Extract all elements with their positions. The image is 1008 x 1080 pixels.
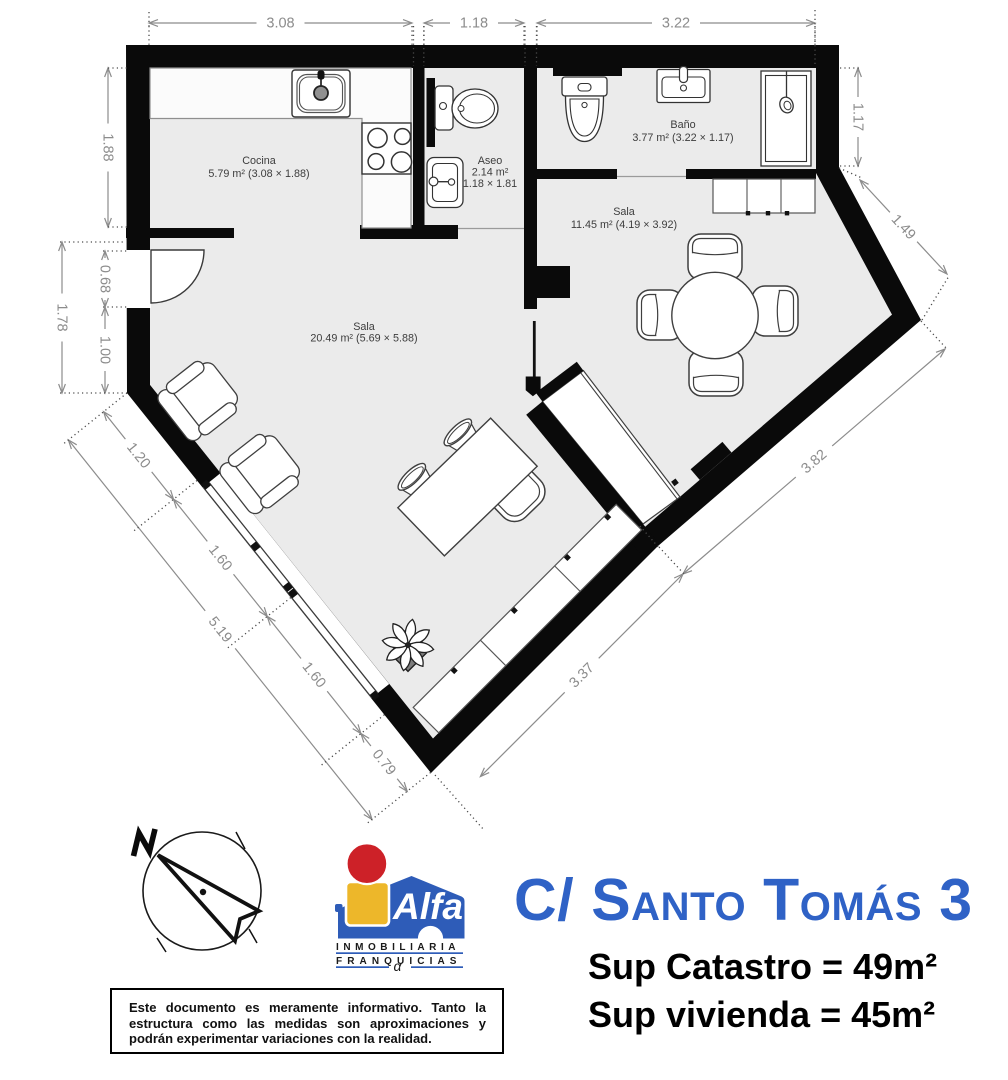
svg-text:Alfa: Alfa (392, 886, 463, 927)
svg-text:Sala: Sala (353, 321, 375, 333)
svg-text:INMOBILIARIA: INMOBILIARIA (336, 942, 460, 953)
svg-text:Aseo: Aseo (478, 155, 503, 167)
svg-text:1.78: 1.78 (54, 303, 70, 331)
svg-text:1.20: 1.20 (123, 440, 153, 472)
svg-text:20.49 m² (5.69 × 5.88): 20.49 m² (5.69 × 5.88) (310, 333, 417, 345)
svg-text:Sala: Sala (613, 206, 635, 218)
svg-text:5.79 m² (3.08 × 1.88): 5.79 m² (3.08 × 1.88) (208, 168, 309, 180)
svg-text:1.00: 1.00 (97, 336, 113, 364)
svg-text:5.19: 5.19 (205, 614, 235, 646)
svg-text:3.82: 3.82 (798, 447, 830, 478)
svg-text:3.22: 3.22 (662, 16, 690, 32)
svg-text:2.14 m²: 2.14 m² (472, 167, 509, 179)
svg-text:1.60: 1.60 (299, 659, 329, 691)
svg-text:11.45 m² (4.19 × 3.92): 11.45 m² (4.19 × 3.92) (571, 219, 677, 231)
svg-text:Cocina: Cocina (242, 155, 276, 167)
svg-text:1.88: 1.88 (100, 133, 116, 161)
svg-text:3.37: 3.37 (566, 660, 597, 691)
svg-text:0.79: 0.79 (369, 747, 399, 779)
svg-text:1.17: 1.17 (850, 103, 866, 131)
svg-text:1.18: 1.18 (460, 16, 488, 32)
svg-text:1.18 × 1.81: 1.18 × 1.81 (463, 178, 517, 190)
svg-text:0.68: 0.68 (97, 265, 113, 293)
svg-text:1.60: 1.60 (205, 542, 235, 574)
svg-text:α: α (394, 958, 403, 974)
svg-text:1.49: 1.49 (888, 212, 919, 244)
svg-text:Baño: Baño (670, 119, 695, 131)
svg-text:3.77 m² (3.22 × 1.17): 3.77 m² (3.22 × 1.17) (632, 132, 733, 144)
svg-text:3.08: 3.08 (266, 16, 294, 32)
